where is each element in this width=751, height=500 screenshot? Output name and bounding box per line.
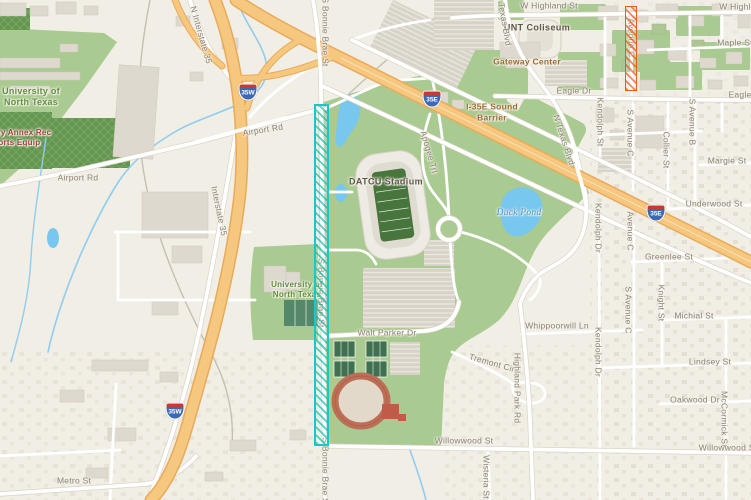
map-label-gateway-center: Gateway Center — [493, 57, 561, 68]
map-label-kendolph-dr: Kendolph Dr — [593, 327, 604, 377]
map-label-s-avenue-c: S Avenue C — [625, 109, 636, 156]
map-canvas[interactable]: W Highland StW Highland StMaple StUNT Co… — [0, 0, 751, 500]
map-label-underwood-st: Underwood St — [686, 199, 743, 210]
map-label-w-highland-st: W Highland St — [520, 1, 578, 12]
shield-number: 35E — [426, 97, 438, 104]
map-label-willowwood-st: Willowwood St — [435, 436, 494, 447]
map-label-interstate-35: Interstate 35 — [209, 185, 230, 237]
map-label-whippoorwill-ln: Whippoorwill Ln — [525, 321, 589, 332]
map-label-kendolph-st: Kendolph St — [595, 97, 606, 146]
map-label-s-bonnie-brae-st: S Bonnie Brae St — [320, 437, 331, 500]
map-label-unt-coliseum: UNT Coliseum — [504, 22, 570, 33]
map-label-lindsey-st: Lindsey St — [689, 357, 731, 368]
map-label-airport-rd: Airport Rd — [242, 122, 284, 139]
interstate-shield-35w: 35W — [239, 84, 258, 101]
interstate-shield-35e: 35E — [423, 91, 442, 108]
shield-number: 35W — [168, 409, 181, 416]
interstate-shield-35w: 35W — [166, 403, 185, 420]
map-label-n-texas-blvd: N Texas Blvd — [551, 113, 577, 166]
map-label-airport-rd: Airport Rd — [58, 173, 99, 184]
map-label-walt-parker-dr: Walt Parker Dr — [358, 328, 417, 339]
map-label-greenlee-st: Greenlee St — [645, 252, 693, 263]
map-label-university-of-north-texas: University of North Texas — [271, 280, 323, 300]
map-label-library-annex-rec-sports-equip: Library Annex Rec Sports Equip — [0, 128, 51, 148]
map-label-tremont-cir: Tremont Cir — [468, 351, 516, 374]
map-label-university-of-north-texas: University of North Texas — [2, 86, 60, 109]
map-label-maple-st: Maple St — [717, 38, 751, 49]
map-label-metro-st: Metro St — [57, 476, 91, 487]
interstate-shield-35e: 35E — [647, 205, 666, 222]
map-label-avenue-c: Avenue C — [626, 18, 637, 57]
shield-number: 35W — [241, 90, 254, 97]
map-label-willowwood-st: Willowwood St — [699, 443, 751, 454]
map-label-kendolph-dr: Kendolph Dr — [593, 203, 604, 253]
map-label-highland-park-rd: Highland Park Rd — [512, 353, 523, 424]
map-label-datcu-stadium: DATCU Stadium — [349, 176, 423, 187]
map-label-eagle-dr: Eagle Dr — [728, 90, 751, 101]
shield-number: 35E — [650, 211, 662, 218]
map-label-collier-st: Collier St — [661, 132, 672, 169]
map-label-michial-st: Michial St — [674, 311, 713, 322]
map-label-s-avenue-b: S Avenue B — [687, 99, 698, 146]
map-label-margie-st: Margie St — [708, 156, 747, 167]
map-label-i-35e-sound-barrier: I-35E Sound Barrier — [466, 101, 518, 122]
map-label-wisteria-st: Wisteria St — [481, 455, 492, 499]
map-label-duck-pond: Duck Pond — [497, 208, 542, 220]
map-label-apogee-trl: Apogee Trl — [418, 130, 440, 175]
map-label-s-bonnie-brae-st: S Bonnie Brae St — [320, 0, 331, 67]
map-labels-layer: W Highland StW Highland StMaple StUNT Co… — [0, 0, 751, 500]
map-label-w-highland-st: W Highland St — [719, 2, 751, 13]
map-label-eagle-dr: Eagle Dr — [556, 86, 591, 97]
map-label-s-avenue-c: S Avenue C — [623, 286, 634, 333]
map-label-knight-st: Knight St — [656, 285, 667, 322]
map-label-oakwood-dr: Oakwood Dr — [670, 395, 720, 406]
map-label-n-interstate-35: N Interstate 35 — [188, 5, 215, 65]
map-label-avenue-c: Avenue C — [625, 211, 636, 250]
map-label-mccormick-st: McCormick St — [719, 391, 730, 447]
